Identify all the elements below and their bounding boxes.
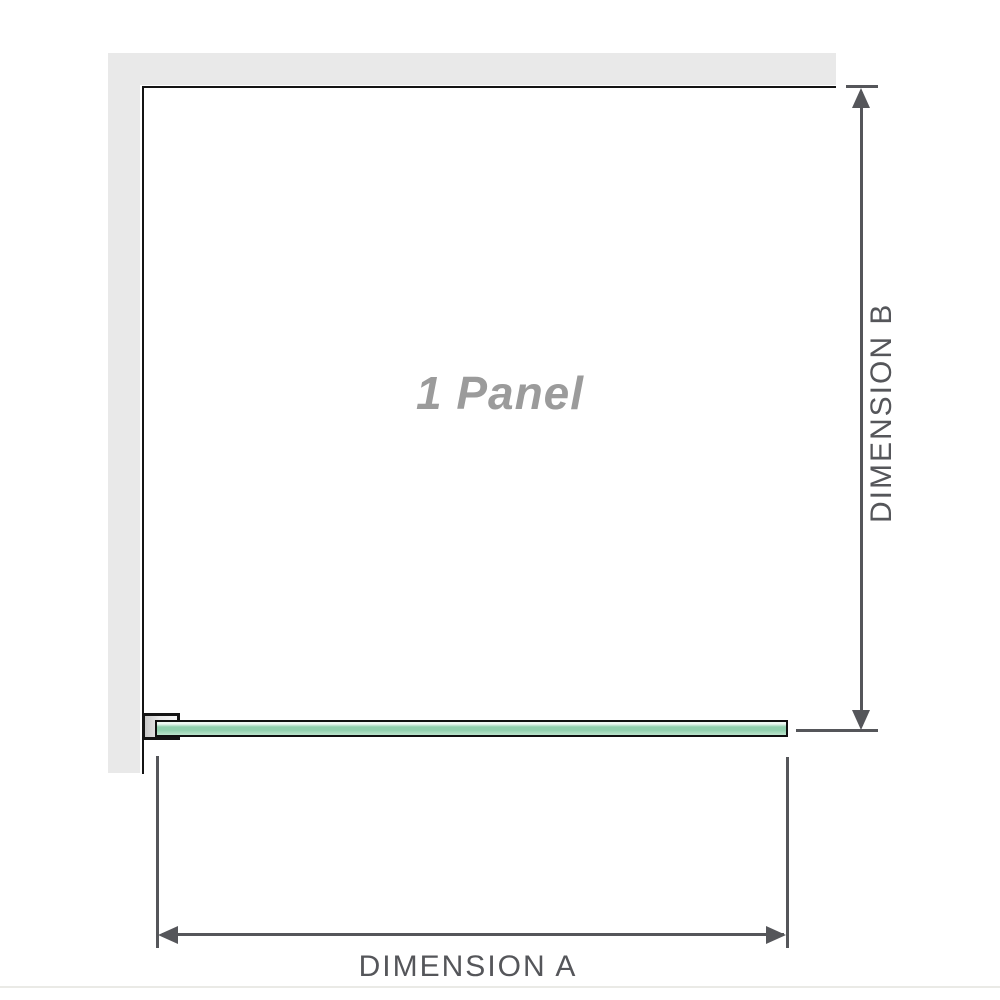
panel-dimension-diagram: 1 Panel DIMENSION B DIMENSION A — [0, 0, 1000, 1000]
dimension-a-arrowhead-left-icon — [158, 926, 178, 944]
glass-panel — [155, 720, 788, 737]
dimension-b-label: DIMENSION B — [864, 308, 900, 518]
wall-top-segment — [108, 53, 836, 85]
panel-count-label: 1 Panel — [350, 366, 650, 420]
dimension-a-extension-right — [786, 757, 789, 948]
wall-left-segment — [108, 53, 140, 773]
panel-outline-left — [142, 86, 144, 774]
dimension-b-arrowhead-down-icon — [852, 710, 870, 730]
dimension-a-extension-left — [156, 756, 159, 948]
dimension-a-line — [162, 933, 784, 936]
dimension-a-label: DIMENSION A — [318, 950, 618, 984]
dimension-b-arrowhead-up-icon — [852, 88, 870, 108]
panel-outline-top — [142, 86, 836, 88]
dimension-a-arrowhead-right-icon — [766, 926, 786, 944]
page-bottom-divider — [0, 986, 1000, 988]
dimension-b-line — [860, 92, 863, 726]
